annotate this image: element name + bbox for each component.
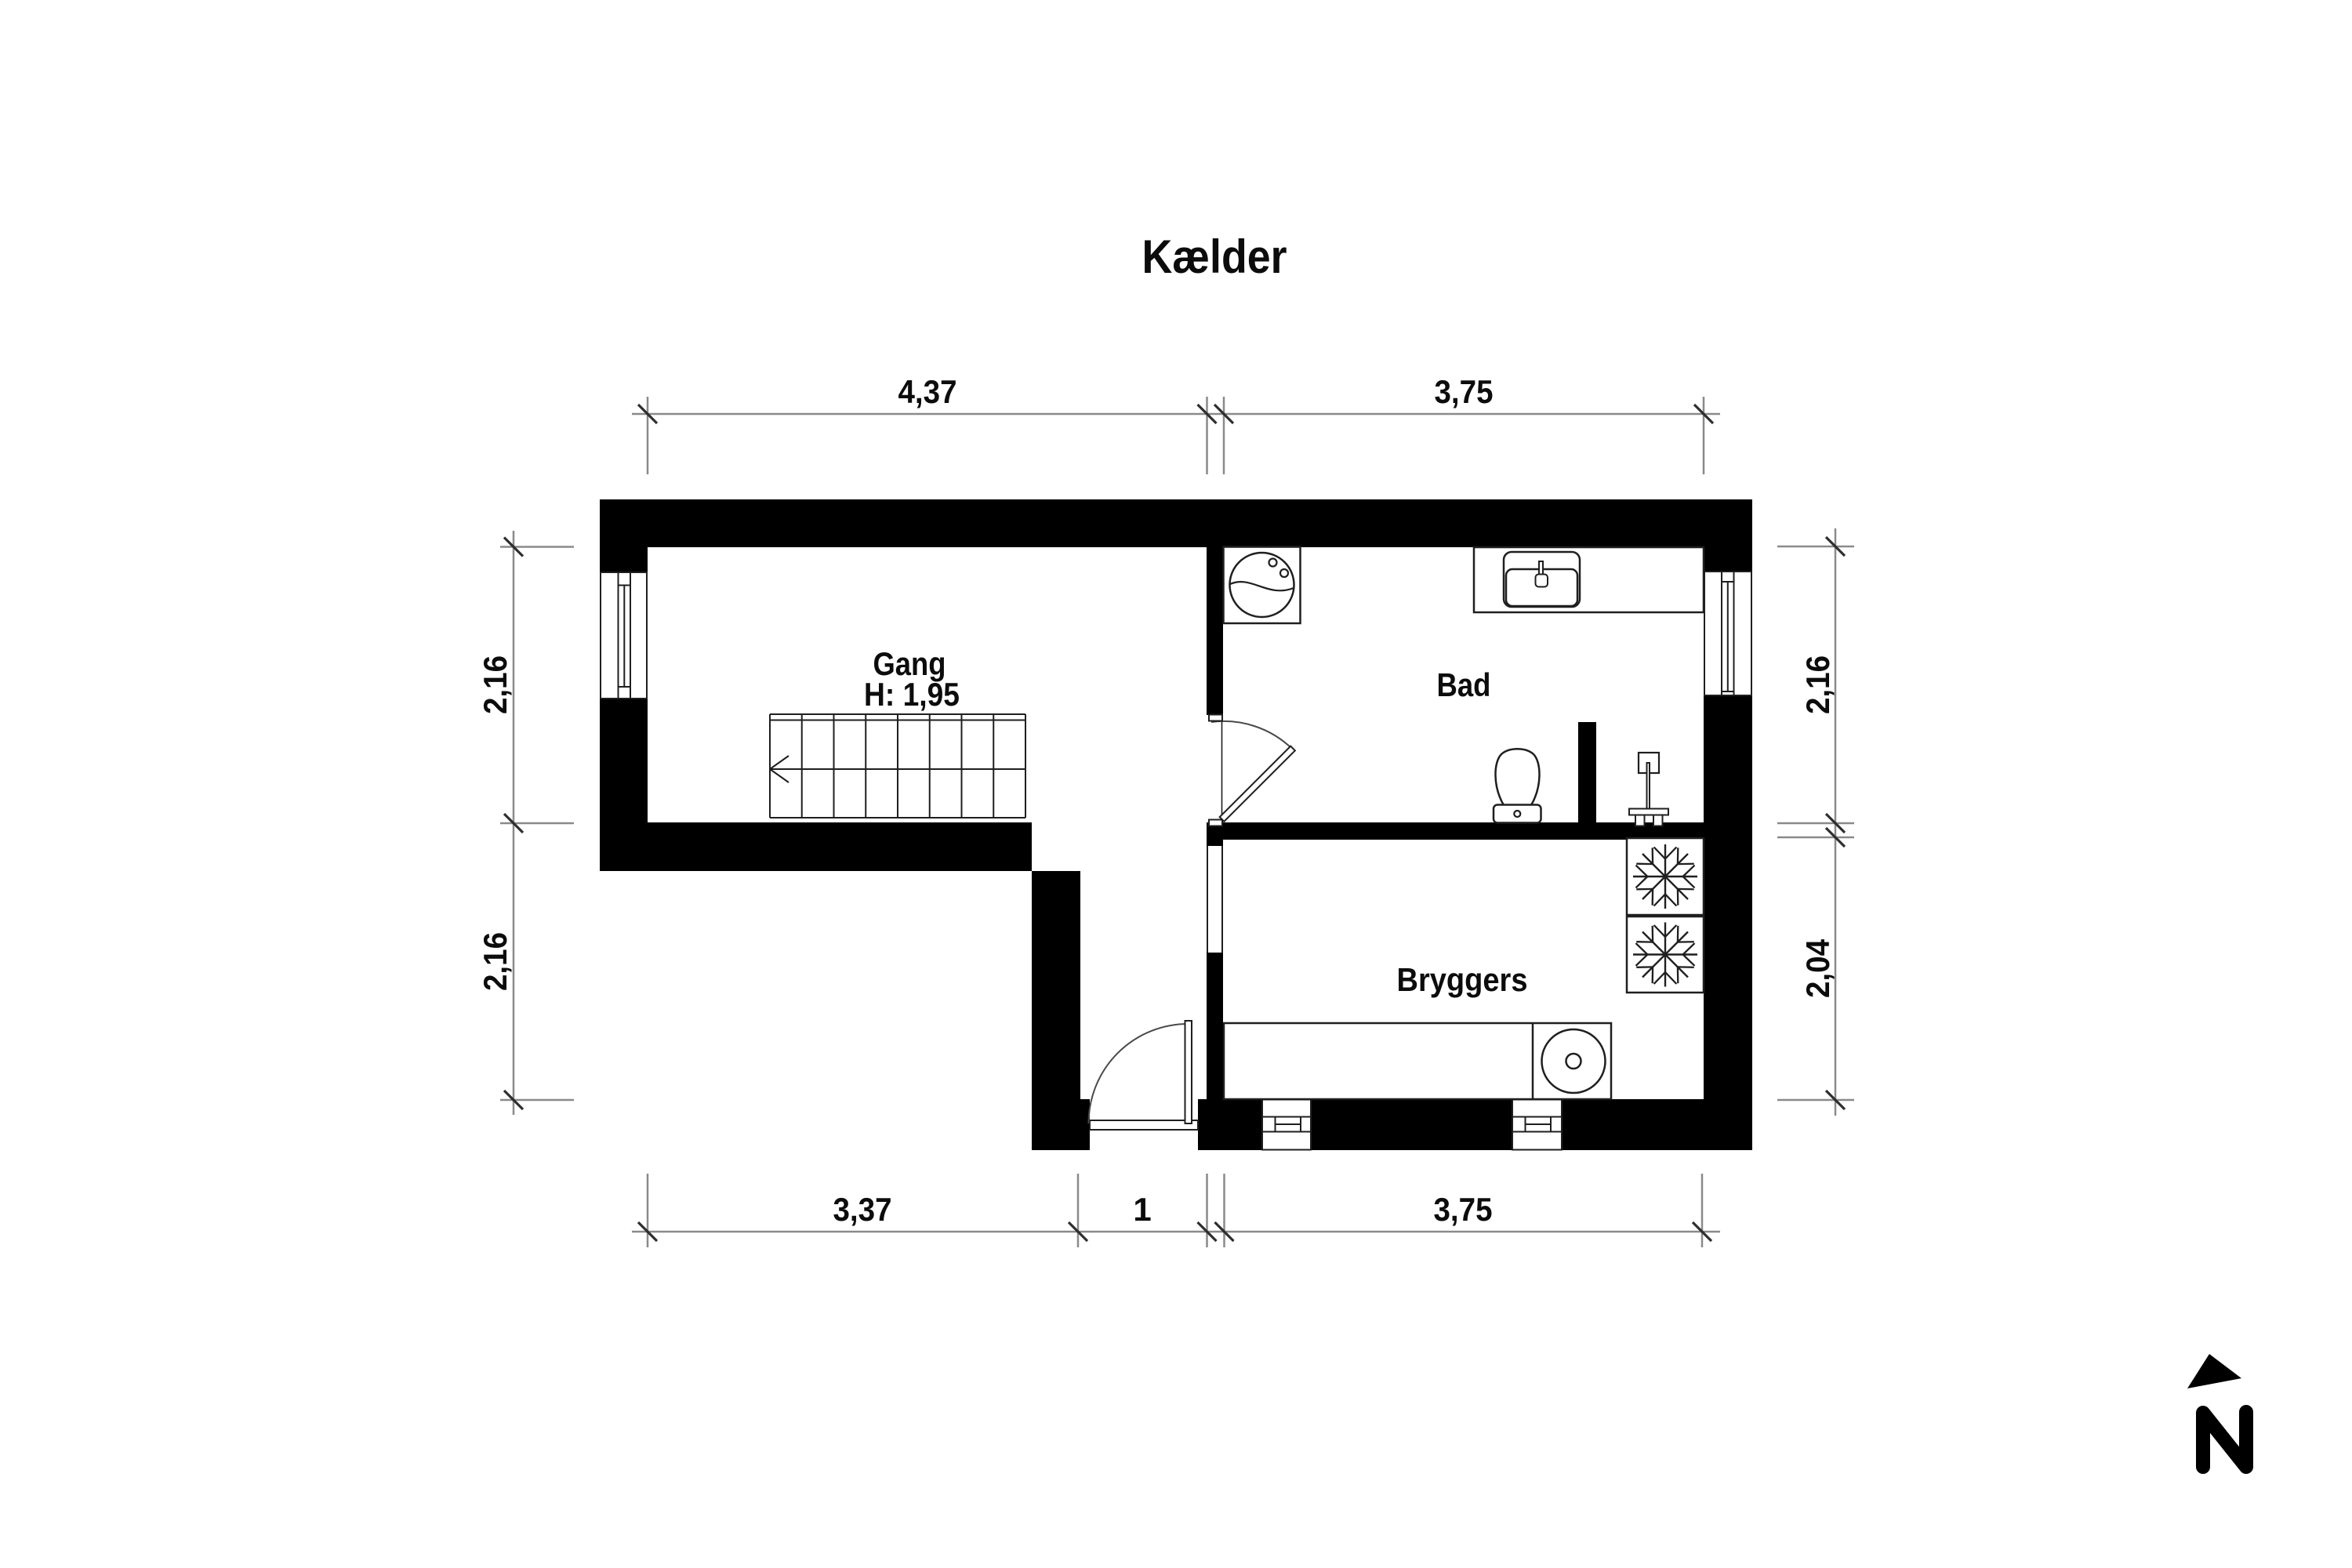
svg-text:H: 1,95: H: 1,95 bbox=[864, 676, 960, 713]
svg-text:3,37: 3,37 bbox=[833, 1191, 892, 1228]
svg-text:Kælder: Kælder bbox=[1142, 230, 1287, 283]
svg-text:3,75: 3,75 bbox=[1435, 373, 1494, 410]
svg-text:3,75: 3,75 bbox=[1434, 1191, 1493, 1228]
svg-text:4,37: 4,37 bbox=[898, 373, 957, 410]
svg-text:Bad: Bad bbox=[1437, 666, 1491, 703]
svg-text:2,16: 2,16 bbox=[477, 655, 514, 714]
svg-text:2,04: 2,04 bbox=[1799, 938, 1836, 998]
svg-text:2,16: 2,16 bbox=[477, 932, 514, 991]
svg-text:2,16: 2,16 bbox=[1799, 655, 1836, 714]
svg-text:1: 1 bbox=[1133, 1191, 1151, 1228]
svg-text:Bryggers: Bryggers bbox=[1397, 961, 1528, 998]
